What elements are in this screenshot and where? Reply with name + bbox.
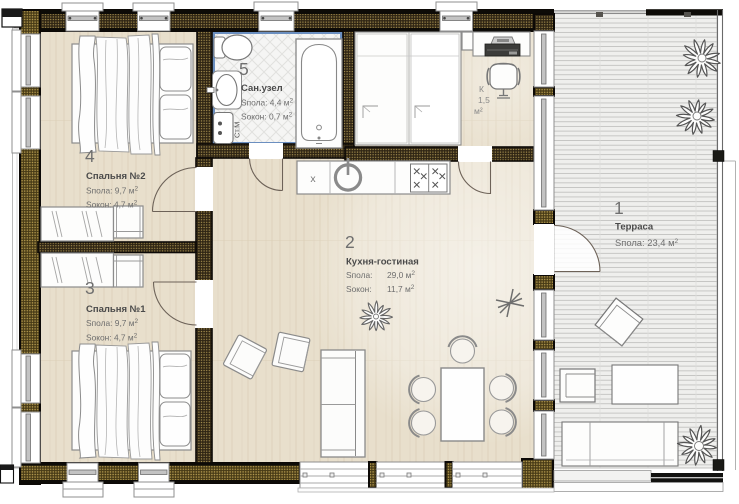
- svg-text:4: 4: [85, 146, 95, 166]
- svg-text:х: х: [310, 173, 316, 185]
- svg-text:Спальня №2: Спальня №2: [86, 171, 146, 182]
- svg-text:29,0 м2: 29,0 м2: [387, 270, 415, 280]
- svg-text:Sокон: 4,7 м2: Sокон: 4,7 м2: [86, 333, 138, 343]
- svg-text:Sпола: 9,7 м2: Sпола: 9,7 м2: [86, 186, 139, 196]
- svg-text:Спальня №1: Спальня №1: [86, 304, 146, 315]
- svg-text:5: 5: [239, 59, 249, 79]
- svg-text:м²: м²: [474, 106, 483, 116]
- svg-text:3: 3: [85, 278, 95, 298]
- svg-text:Sпола:: Sпола:: [346, 270, 372, 280]
- svg-text:К: К: [479, 84, 484, 94]
- svg-text:1,5: 1,5: [478, 95, 490, 105]
- svg-text:Кухня-гостиная: Кухня-гостиная: [346, 257, 419, 268]
- svg-text:1: 1: [614, 198, 624, 218]
- svg-text:Sпола: 4,4 м2: Sпола: 4,4 м2: [241, 98, 294, 108]
- svg-text:Sпола: 9,7 м2: Sпола: 9,7 м2: [86, 318, 139, 328]
- svg-text:Сан.узел: Сан.узел: [241, 83, 283, 94]
- svg-text:2: 2: [345, 232, 355, 252]
- svg-text:Ст.М: Ст.М: [233, 122, 242, 138]
- svg-text:Sокон: 4,7 м2: Sокон: 4,7 м2: [86, 200, 138, 210]
- svg-text:Терраса: Терраса: [615, 222, 654, 233]
- svg-text:Sпола: 23,4 м2: Sпола: 23,4 м2: [615, 237, 679, 248]
- svg-text:11,7 м2: 11,7 м2: [387, 284, 415, 294]
- svg-text:Sокон: 0,7 м2: Sокон: 0,7 м2: [241, 112, 293, 122]
- svg-text:Sокон:: Sокон:: [346, 284, 372, 294]
